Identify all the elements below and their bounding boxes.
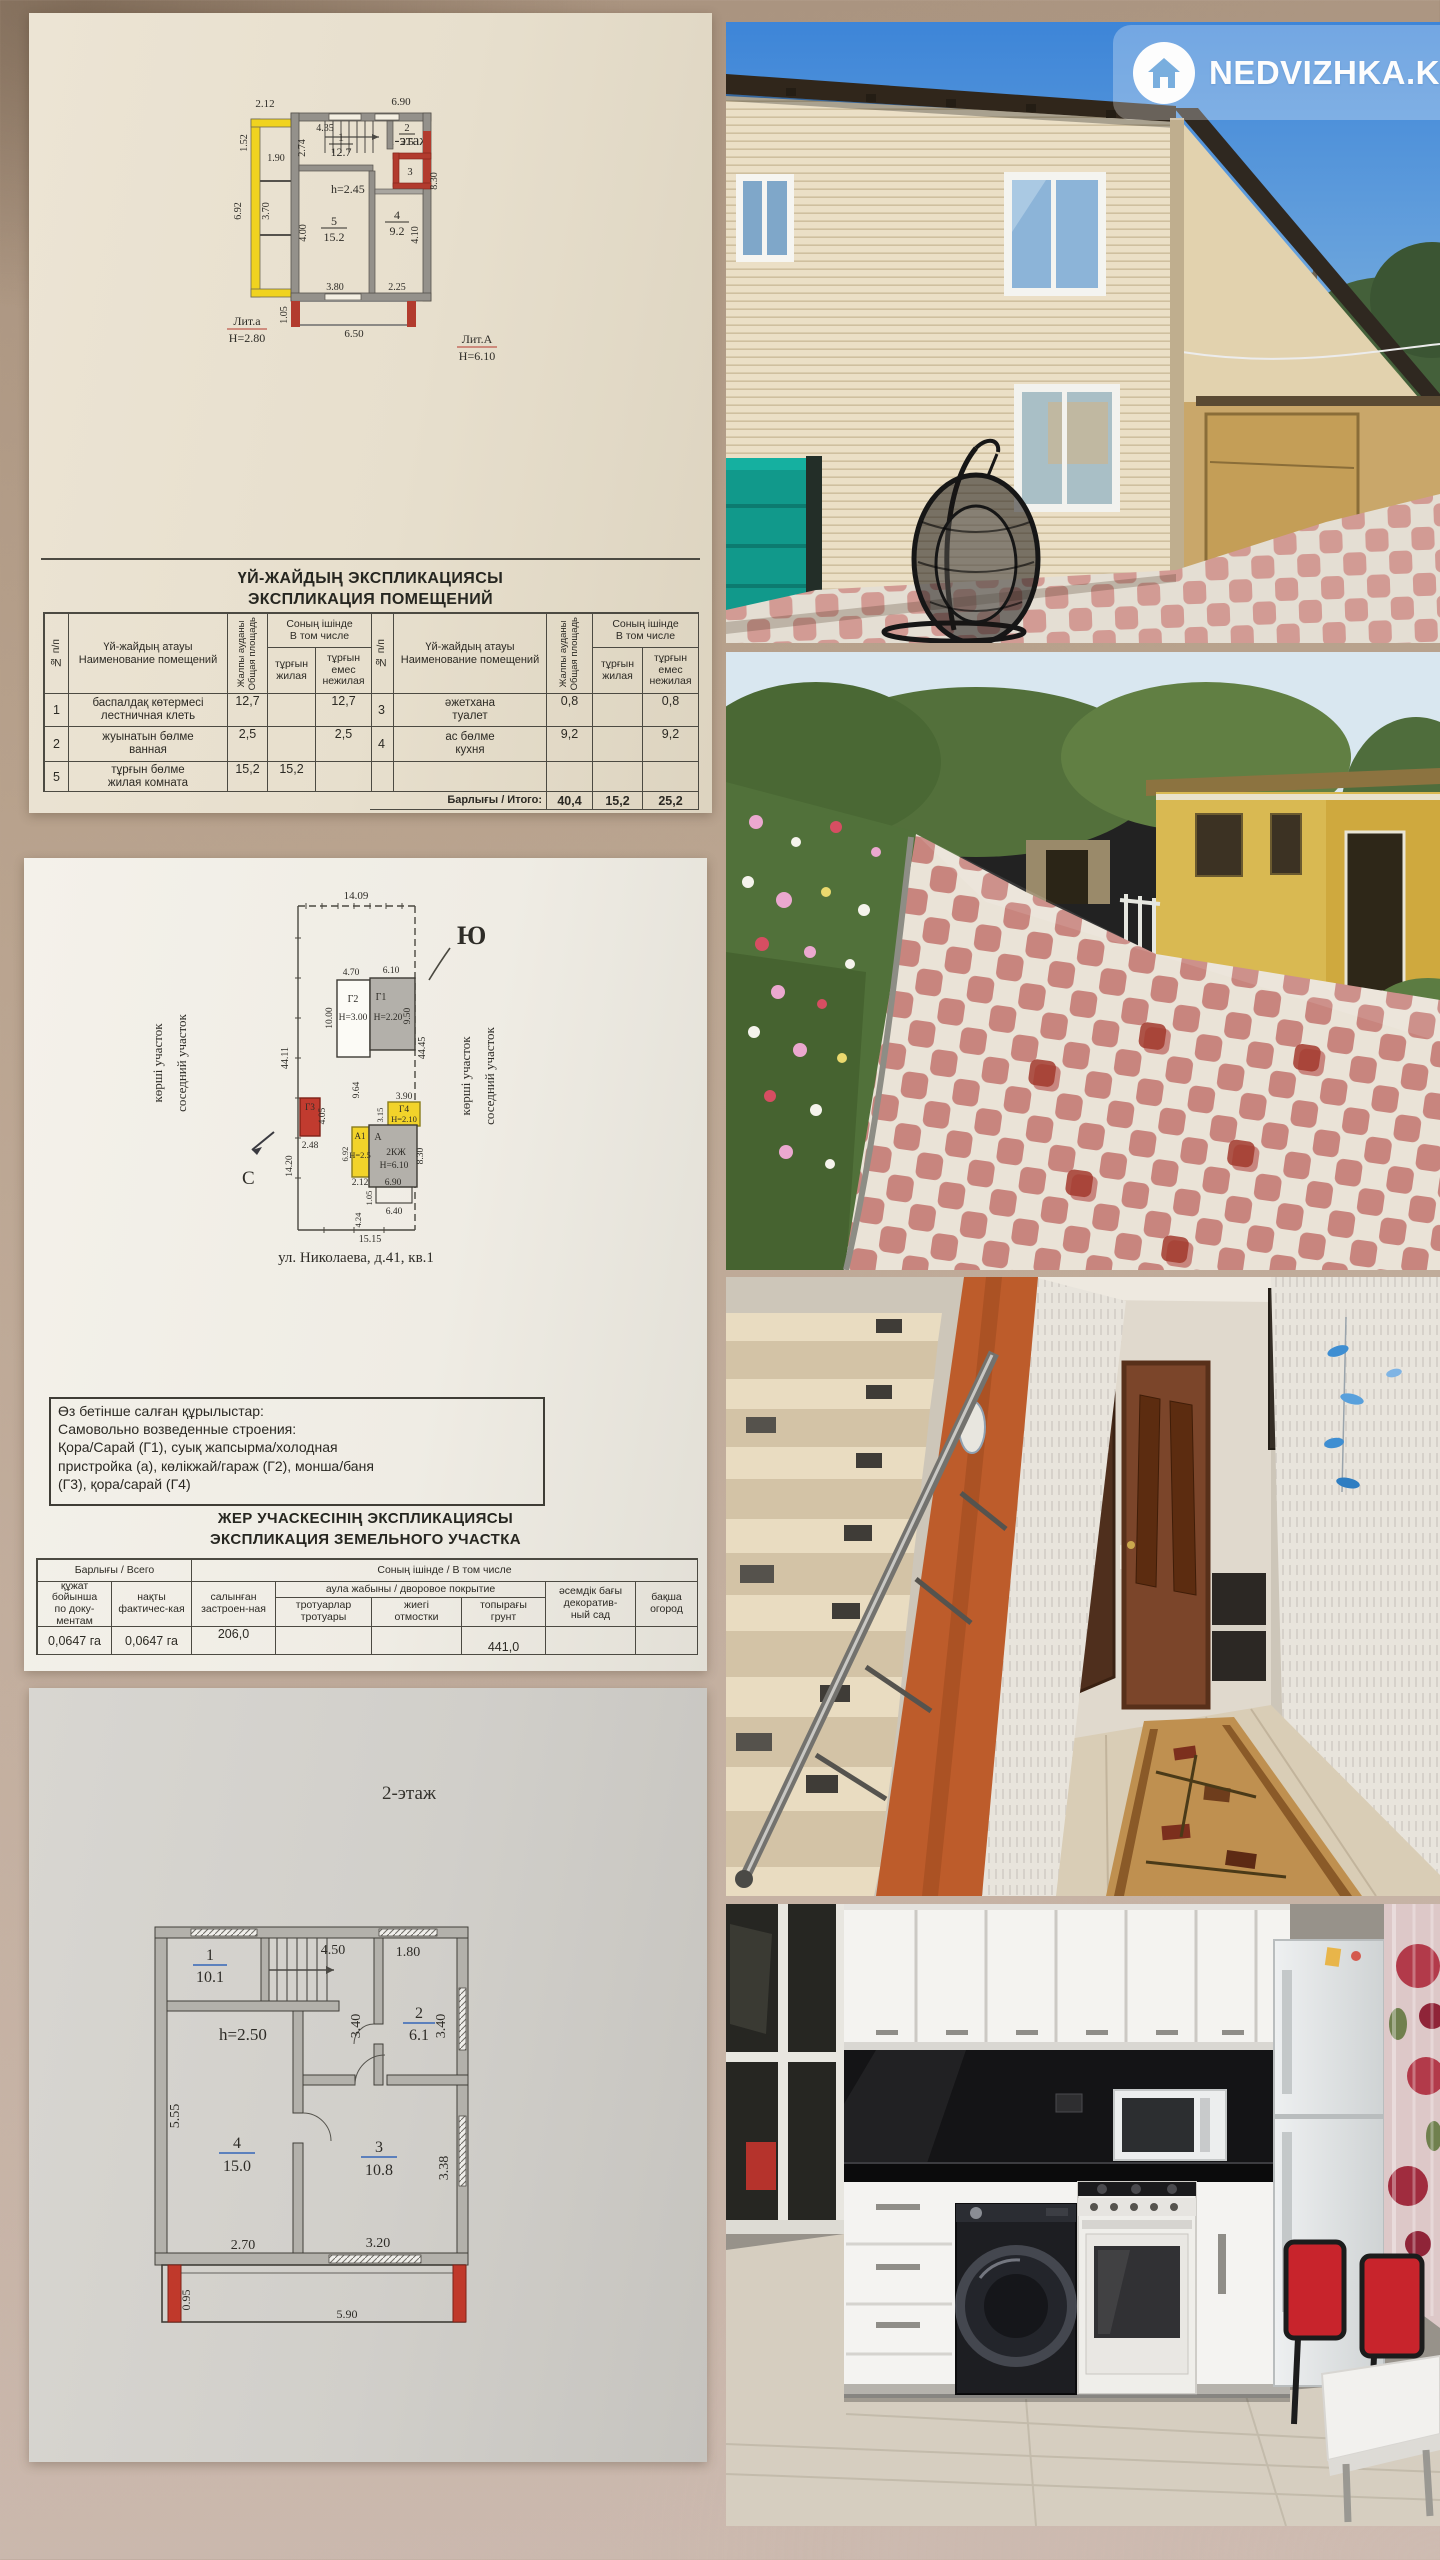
upper-cabinets [844,1904,1290,2050]
svg-text:3.40: 3.40 [349,2014,364,2039]
svg-text:Н=2.5: Н=2.5 [349,1150,371,1160]
room-labels: 1 10.1 2 6.1 4 15.0 3 10.8 [193,1947,435,2179]
svg-text:соседний участок: соседний участок [174,1013,189,1111]
countertop [844,2162,1290,2182]
svg-text:А1: А1 [355,1131,366,1141]
land-table-title-kz: ЖЕР УЧАСКЕСІНІҢ ЭКСПЛИКАЦИЯСЫ [24,1510,707,1527]
floorplan-2-drawing: 4.50 1.80 3.40 3.40 5.55 3.38 2.70 3.20 … [29,1688,707,2462]
porch [291,301,416,327]
divider-line [41,558,700,560]
group-total: Барлығы / Всего [38,1560,192,1582]
svg-text:6.90: 6.90 [391,96,411,108]
svg-text:көрші участок: көрші участок [150,1023,165,1103]
svg-text:3.40: 3.40 [434,2014,449,2039]
svg-text:3.15: 3.15 [375,1108,385,1123]
svg-text:2: 2 [404,123,409,134]
svg-text:Н=6.10: Н=6.10 [459,349,495,363]
group-incl: Соның ішінде / В том числе [192,1560,698,1582]
microwave [1114,2090,1226,2160]
svg-text:5: 5 [331,214,337,228]
header-area: Жалпы ауданы Общая площадь [559,617,581,690]
svg-text:6.1: 6.1 [409,2027,429,2044]
svg-text:2.25: 2.25 [388,282,406,293]
svg-text:3: 3 [407,167,412,178]
window-upper [1004,172,1106,296]
header-nonliving: тұрғын емес нежилая [316,648,372,694]
row-num: 1 [45,694,69,727]
svg-text:Н=2.80: Н=2.80 [229,331,265,345]
row-name: баспалдақ көтермесі лестничная клеть [69,694,228,727]
premises-table-right: № п/п Үй-жайдың атауы Наименование помещ… [370,612,699,810]
svg-text:1.05: 1.05 [279,306,290,324]
svg-text:3.70: 3.70 [261,202,272,220]
total-nonliving: 25,2 [643,792,699,810]
svg-text:Н=2.20: Н=2.20 [374,1013,403,1023]
svg-text:9.2: 9.2 [390,224,405,238]
svg-text:4.70: 4.70 [343,968,360,978]
svg-text:10.8: 10.8 [365,2162,393,2179]
svg-text:6.90: 6.90 [385,1178,402,1188]
svg-text:6.92: 6.92 [233,202,244,220]
svg-text:4.05: 4.05 [318,1107,328,1124]
svg-text:6.50: 6.50 [344,328,364,340]
svg-text:4: 4 [233,2135,241,2152]
svg-text:Г1: Г1 [376,992,387,1003]
svg-text:көрші участок: көрші участок [458,1036,473,1116]
svg-text:15.0: 15.0 [223,2158,251,2175]
header-living: тұрғын жилая [593,648,643,694]
header-name: Үй-жайдың атауы Наименование помещений [69,614,228,694]
svg-text:4.24: 4.24 [353,1212,363,1228]
svg-text:Лит.А: Лит.А [462,332,493,346]
document-site-plan: 14.09 44.11 44.45 4.70 6.10 10.00 9.50 Г… [24,858,707,1671]
svg-text:9.64: 9.64 [352,1081,362,1098]
header-area: Жалпы ауданы Общая площадь [237,617,259,690]
row-num: 2 [45,727,69,762]
site-plan-drawing: 14.09 44.11 44.45 4.70 6.10 10.00 9.50 Г… [24,858,707,1278]
header-no: № п/п [50,639,62,668]
watermark-brand: NEDVIZHKA.KZ [1209,54,1440,92]
height-note-1f: h=2.45 [331,182,365,196]
header-living: тұрғын жилая [268,648,316,694]
svg-text:1.52: 1.52 [239,134,250,152]
photo-kitchen [726,1904,1440,2526]
svg-text:4.00: 4.00 [298,224,309,242]
svg-text:6.40: 6.40 [386,1207,403,1217]
header-no: № п/п [375,639,387,668]
total-all: 40,4 [547,792,593,810]
watermark-house-icon [1133,42,1195,104]
window [726,1904,844,2234]
svg-text:8.30: 8.30 [416,1147,426,1164]
totals-label: Барлығы / Итого: [370,792,547,810]
svg-text:5.90: 5.90 [337,2307,358,2321]
svg-text:3.90: 3.90 [396,1092,413,1102]
svg-text:2.74: 2.74 [297,139,308,157]
gas-stove [1078,2182,1196,2394]
window-left [736,174,794,262]
height-note-2f: h=2.50 [219,2025,267,2044]
svg-text:2КЖ: 2КЖ [386,1148,406,1158]
svg-text:4.35: 4.35 [316,123,334,134]
row-name: тұрғын бөлме жилая комната [69,762,228,792]
svg-text:2.5: 2.5 [400,137,413,148]
svg-text:2.12: 2.12 [352,1178,369,1188]
svg-text:2.70: 2.70 [231,2238,256,2253]
svg-text:3.80: 3.80 [326,282,344,293]
svg-text:8.30: 8.30 [429,172,440,190]
svg-text:1: 1 [338,130,344,144]
svg-text:3.20: 3.20 [366,2236,391,2251]
svg-text:6.10: 6.10 [383,966,400,976]
svg-text:1.05: 1.05 [364,1191,374,1206]
document-floorplan-1: 1-этаж 2.12 6.90 [29,13,712,813]
total-living: 15,2 [593,792,643,810]
svg-text:Лит.а: Лит.а [233,314,261,328]
svg-text:10.1: 10.1 [196,1969,224,1986]
land-table: Барлығы / Всего Соның ішінде / В том чис… [36,1558,698,1655]
svg-text:Г2: Г2 [348,994,359,1005]
header-name: Үй-жайдың атауы Наименование помещений [394,614,547,694]
self-built-note: Өз бетінше салған құрылыстар: Самовольно… [49,1397,545,1506]
land-table-title-ru: ЭКСПЛИКАЦИЯ ЗЕМЕЛЬНОГО УЧАСТКА [24,1531,707,1548]
svg-text:2: 2 [415,2005,423,2022]
north-arrow [252,1132,274,1150]
premises-table-left: № п/п Үй-жайдың атауы Наименование помещ… [43,612,372,792]
svg-text:1: 1 [206,1947,214,1964]
south-mark: Ю [457,921,486,950]
svg-text:4.50: 4.50 [321,1943,346,1958]
row-num: 5 [45,762,69,792]
washing-machine [956,2204,1076,2394]
window-lower [1014,384,1120,512]
header-incl: Соның ішінде В том числе [593,614,699,648]
row-name: жуынатын бөлме ванная [69,727,228,762]
door-center [1124,1363,1208,1707]
photo-courtyard [726,652,1440,1270]
document-floorplan-2: 2-этаж [29,1688,707,2462]
svg-text:1.90: 1.90 [267,153,285,164]
svg-text:15.2: 15.2 [324,230,345,244]
svg-text:9.50: 9.50 [403,1007,413,1024]
svg-text:Н=3.00: Н=3.00 [339,1013,368,1023]
group-yard: аула жабыны / дворовое покрытие [276,1582,546,1598]
header-incl: Соның ішінде В том числе [268,614,372,648]
svg-text:14.20: 14.20 [285,1155,295,1177]
svg-text:0.95: 0.95 [179,2290,193,2311]
svg-text:А: А [374,1132,382,1143]
north-mark: С [242,1168,255,1189]
header-nonliving: тұрғын емес нежилая [643,648,699,694]
floorplan-1-drawing: 1-этаж 2.12 6.90 [29,13,712,573]
svg-text:12.7: 12.7 [331,145,352,159]
watermark-card: NEDVIZHKA.KZ [1113,25,1440,120]
svg-text:соседний участок: соседний участок [482,1026,497,1124]
premises-table-title-ru: ЭКСПЛИКАЦИЯ ПОМЕЩЕНИЙ [29,591,712,609]
address-caption: ул. Николаева, д.41, кв.1 [278,1250,434,1266]
svg-text:4.10: 4.10 [410,226,421,244]
svg-text:2.48: 2.48 [302,1141,319,1151]
annex-walls-yellow [251,119,295,297]
svg-text:6.92: 6.92 [340,1147,350,1162]
svg-text:5.55: 5.55 [168,2104,183,2129]
svg-text:Г3: Г3 [305,1102,315,1112]
south-arrow [429,948,450,980]
svg-text:15.15: 15.15 [359,1234,382,1245]
balcony [162,2265,466,2322]
svg-text:Н=6.10: Н=6.10 [380,1161,409,1171]
svg-text:Н=2.10: Н=2.10 [391,1114,417,1124]
svg-text:2.12: 2.12 [255,98,274,110]
svg-text:3: 3 [375,2139,383,2156]
svg-text:44.45: 44.45 [417,1037,428,1060]
svg-text:4: 4 [394,208,400,222]
svg-text:10.00: 10.00 [325,1007,335,1029]
svg-text:3.38: 3.38 [437,2156,452,2181]
svg-text:1.80: 1.80 [396,1945,421,1960]
premises-table-title-kz: ҮЙ-ЖАЙДЫҢ ЭКСПЛИКАЦИЯСЫ [29,570,712,588]
svg-text:14.09: 14.09 [344,890,369,902]
photo-hallway-stairs [726,1277,1440,1896]
svg-text:44.11: 44.11 [280,1047,291,1069]
